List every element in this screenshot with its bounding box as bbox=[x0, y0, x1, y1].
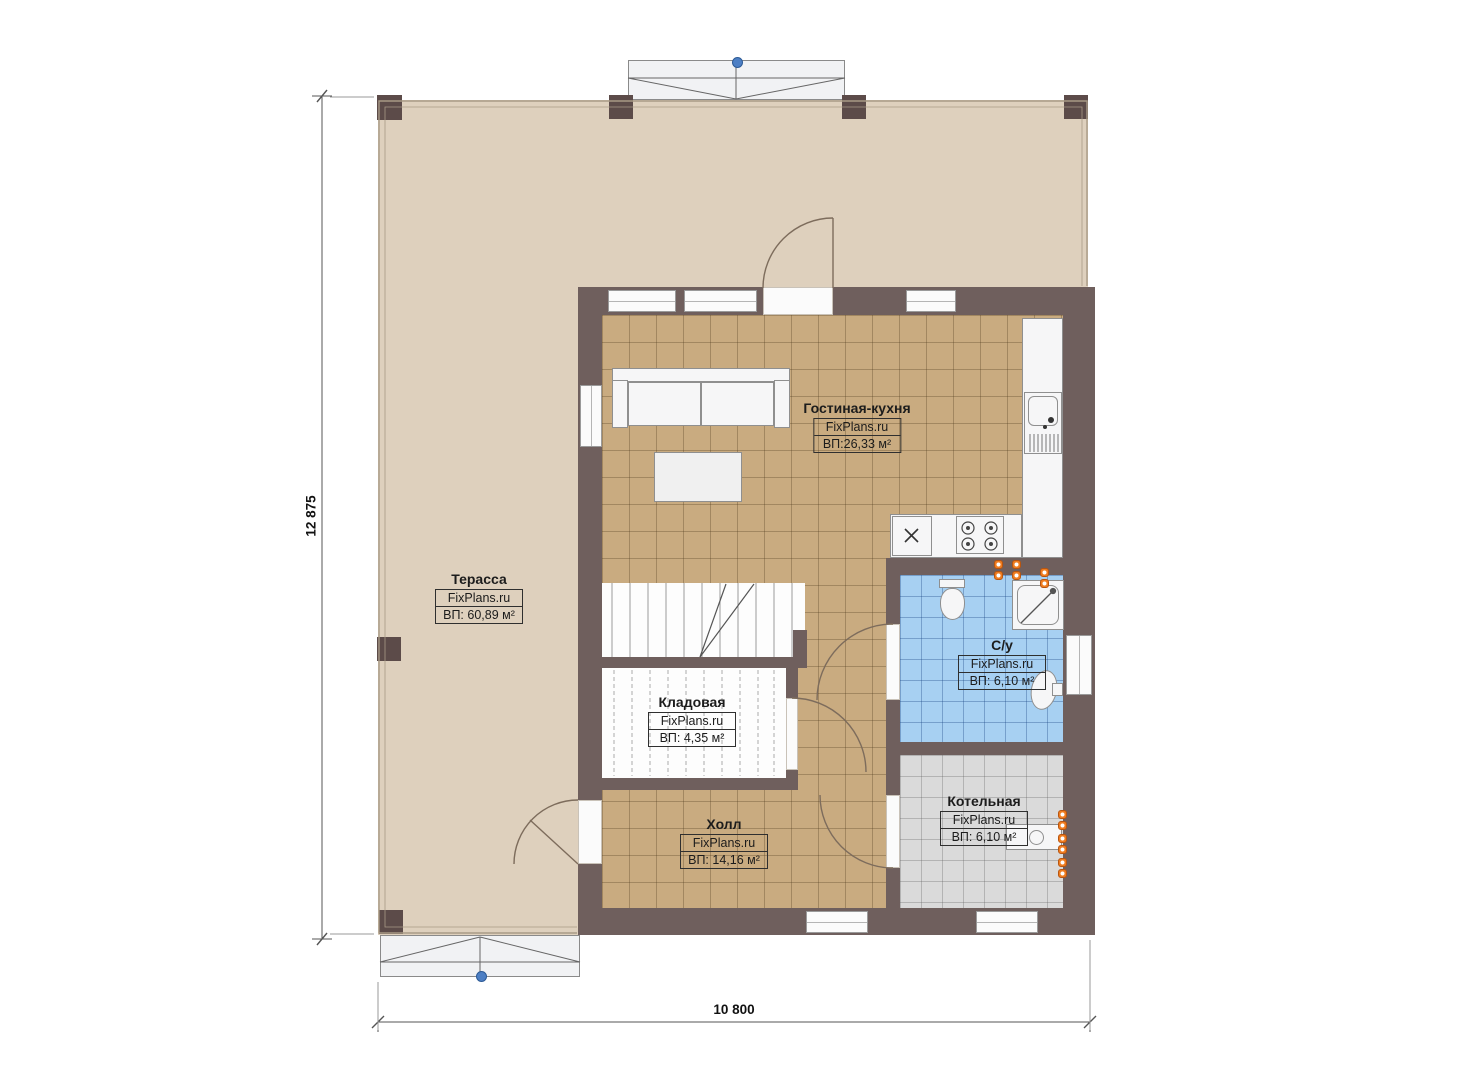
room-name: С/у bbox=[958, 637, 1046, 653]
outlet-marker-4 bbox=[1058, 810, 1068, 832]
outlet-marker-3 bbox=[1040, 568, 1050, 590]
room-area: ВП: 14,16 м² bbox=[681, 852, 767, 868]
interior-wall-storage-bottom bbox=[602, 778, 798, 790]
outlet-marker-5 bbox=[1058, 834, 1068, 856]
interior-wall-stairs bbox=[602, 657, 807, 668]
shower-inner bbox=[1017, 585, 1059, 625]
room-name: Кладовая bbox=[648, 694, 736, 710]
room-area: ВП: 6,10 м² bbox=[959, 673, 1045, 689]
room-area: ВП: 4,35 м² bbox=[649, 730, 735, 746]
sofa-arm-left bbox=[612, 380, 628, 428]
terrace-column-6 bbox=[379, 910, 403, 934]
watermark-box: FixPlans.ru ВП: 6,10 м² bbox=[958, 655, 1046, 690]
window-right-bathroom bbox=[1066, 635, 1092, 695]
stove bbox=[956, 516, 1004, 554]
watermark-text: FixPlans.ru bbox=[814, 419, 900, 436]
room-label-hall: Холл FixPlans.ru ВП: 14,16 м² bbox=[680, 816, 768, 869]
terrace-column-4 bbox=[1064, 95, 1088, 119]
terrace-column-1 bbox=[377, 95, 402, 120]
room-label-storage: Кладовая FixPlans.ru ВП: 4,35 м² bbox=[648, 694, 736, 747]
toilet-bowl bbox=[940, 588, 965, 620]
watermark-text: FixPlans.ru bbox=[959, 656, 1045, 673]
outlet-marker-1 bbox=[994, 560, 1004, 582]
room-label-terrace: Терасса FixPlans.ru ВП: 60,89 м² bbox=[435, 571, 523, 624]
watermark-text: FixPlans.ru bbox=[681, 835, 767, 852]
terrace-door-opening bbox=[763, 287, 833, 315]
room-name: Холл bbox=[680, 816, 768, 832]
room-label-living-kitchen: Гостиная-кухня FixPlans.ru ВП:26,33 м² bbox=[803, 400, 910, 453]
appliance-x-cabinet bbox=[892, 516, 932, 556]
step-marker-bottom bbox=[476, 971, 487, 982]
watermark-box: FixPlans.ru ВП: 6,10 м² bbox=[940, 811, 1028, 846]
basin-connector bbox=[1052, 683, 1063, 696]
floor-plan-canvas: 12 875 10 800 Терасса FixPlans.ru ВП: 60… bbox=[0, 0, 1474, 1080]
terrace-column-3 bbox=[842, 95, 866, 119]
step-marker-top bbox=[732, 57, 743, 68]
window-bottom-boiler bbox=[976, 911, 1038, 933]
window-top-1 bbox=[608, 290, 676, 312]
dimension-label-vertical: 12 875 bbox=[304, 495, 319, 536]
watermark-box: FixPlans.ru ВП: 4,35 м² bbox=[648, 712, 736, 747]
outlet-marker-6 bbox=[1058, 858, 1068, 880]
room-area: ВП: 60,89 м² bbox=[436, 607, 522, 623]
watermark-text: FixPlans.ru bbox=[941, 812, 1027, 829]
outlet-marker-2 bbox=[1012, 560, 1022, 582]
terrace-column-2 bbox=[609, 95, 633, 119]
storage-door-opening bbox=[786, 698, 798, 770]
sofa-seat-right bbox=[701, 382, 774, 426]
sofa-seat-left bbox=[628, 382, 701, 426]
terrace-column-5 bbox=[377, 637, 401, 661]
dimension-label-horizontal: 10 800 bbox=[713, 1002, 754, 1017]
window-top-2 bbox=[684, 290, 757, 312]
boiler-dial bbox=[1029, 830, 1044, 845]
room-label-bathroom: С/у FixPlans.ru ВП: 6,10 м² bbox=[958, 637, 1046, 690]
watermark-text: FixPlans.ru bbox=[436, 590, 522, 607]
room-area: ВП:26,33 м² bbox=[814, 436, 900, 452]
sofa-back bbox=[612, 368, 790, 382]
window-bottom-hall bbox=[806, 911, 868, 933]
room-area: ВП: 6,10 м² bbox=[941, 829, 1027, 845]
sink-basin bbox=[1028, 396, 1058, 426]
terrace-floor-top bbox=[378, 100, 1088, 288]
interior-wall-stub bbox=[793, 630, 807, 657]
watermark-box: FixPlans.ru ВП: 60,89 м² bbox=[435, 589, 523, 624]
boiler-door-opening bbox=[886, 795, 900, 868]
window-top-3 bbox=[906, 290, 956, 312]
stairs-area bbox=[602, 583, 805, 657]
watermark-box: FixPlans.ru ВП: 14,16 м² bbox=[680, 834, 768, 869]
bathroom-door-opening bbox=[886, 624, 900, 700]
toilet-tank bbox=[939, 579, 965, 588]
hall-entry-door-opening bbox=[578, 800, 602, 864]
room-label-boiler: Котельная FixPlans.ru ВП: 6,10 м² bbox=[940, 793, 1028, 846]
room-name: Гостиная-кухня bbox=[803, 400, 910, 416]
room-name: Котельная bbox=[940, 793, 1028, 809]
watermark-box: FixPlans.ru ВП:26,33 м² bbox=[813, 418, 901, 453]
window-left-living bbox=[580, 385, 602, 447]
coffee-table bbox=[654, 452, 742, 502]
sofa-arm-right bbox=[774, 380, 790, 428]
watermark-text: FixPlans.ru bbox=[649, 713, 735, 730]
room-name: Терасса bbox=[435, 571, 523, 587]
